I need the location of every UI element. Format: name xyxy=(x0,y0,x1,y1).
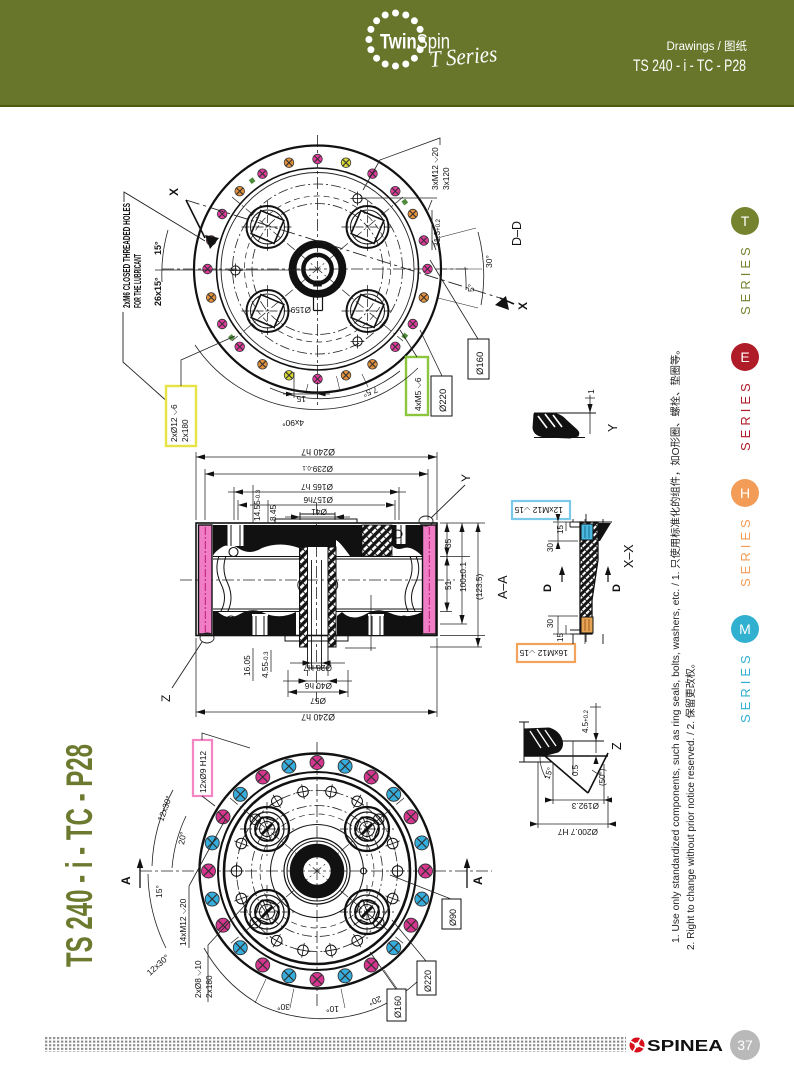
svg-text:12xØ9 H12: 12xØ9 H12 xyxy=(198,751,208,793)
svg-text:Ø159: Ø159 xyxy=(290,305,311,315)
svg-text:16.05: 16.05 xyxy=(242,655,252,676)
svg-text:A: A xyxy=(471,876,485,885)
svg-text:14xM12 ⌵20: 14xM12 ⌵20 xyxy=(178,898,188,946)
svg-text:51: 51 xyxy=(443,580,453,590)
svg-text:Y: Y xyxy=(459,474,473,482)
svg-text:8.45: 8.45 xyxy=(268,504,278,521)
svg-text:4x90°: 4x90° xyxy=(282,418,304,428)
svg-text:20°: 20° xyxy=(367,994,383,1008)
svg-text:2xØ12 ⌵6: 2xØ12 ⌵6 xyxy=(169,404,179,442)
svg-text:Ø220: Ø220 xyxy=(438,389,449,412)
svg-text:A: A xyxy=(119,876,133,885)
svg-text:5°: 5° xyxy=(466,284,476,292)
svg-text:15: 15 xyxy=(296,394,306,404)
svg-text:35: 35 xyxy=(443,538,453,548)
svg-text:Y: Y xyxy=(606,423,620,432)
svg-text:Ø192.3: Ø192.3 xyxy=(571,801,599,811)
svg-text:12xM12 ⌵15: 12xM12 ⌵15 xyxy=(514,505,563,515)
svg-text:0.5: 0.5 xyxy=(571,764,580,776)
svg-text:FOR THE LUBRICANT: FOR THE LUBRICANT xyxy=(132,254,144,308)
svg-text:4.55-0.3: 4.55-0.3 xyxy=(260,651,270,678)
svg-text:55.5: 55.5 xyxy=(359,616,369,633)
svg-text:3xM12 ⌵20: 3xM12 ⌵20 xyxy=(430,147,440,190)
svg-text:15°: 15° xyxy=(153,241,163,255)
svg-text:15°: 15° xyxy=(154,885,164,898)
svg-text:Ø28 H7: Ø28 H7 xyxy=(303,663,332,673)
svg-text:10°: 10° xyxy=(326,1004,339,1014)
svg-text:30: 30 xyxy=(546,619,555,628)
svg-text:4xM5 ⌵6: 4xM5 ⌵6 xyxy=(413,377,423,411)
svg-text:20°: 20° xyxy=(176,831,188,845)
svg-text:4.5+0.2: 4.5+0.2 xyxy=(581,709,590,733)
svg-text:D: D xyxy=(542,584,554,592)
svg-text:Ø239-0.1: Ø239-0.1 xyxy=(302,464,333,474)
svg-text:(50°): (50°) xyxy=(598,768,607,786)
svg-text:Ø240 h7: Ø240 h7 xyxy=(301,447,335,457)
svg-text:Ø40 h6: Ø40 h6 xyxy=(304,681,332,691)
svg-text:X–X: X–X xyxy=(622,544,636,568)
svg-text:15: 15 xyxy=(556,525,565,534)
svg-text:Ø240 h7: Ø240 h7 xyxy=(301,712,335,722)
svg-text:1: 1 xyxy=(586,389,596,394)
svg-text:7.5°: 7.5° xyxy=(362,385,380,400)
svg-text:2x180: 2x180 xyxy=(180,419,190,442)
svg-text:Ø160: Ø160 xyxy=(393,996,403,1018)
svg-text:X: X xyxy=(516,302,530,310)
svg-text:26x15°: 26x15° xyxy=(153,277,163,306)
svg-text:30°: 30° xyxy=(484,255,494,268)
svg-text:Ø160: Ø160 xyxy=(475,352,486,375)
svg-text:D–D: D–D xyxy=(510,221,524,246)
svg-text:3x120: 3x120 xyxy=(441,167,451,190)
svg-text:A–A: A–A xyxy=(496,575,510,599)
svg-text:Ø90: Ø90 xyxy=(448,909,458,926)
svg-text:Ø200.7 H7: Ø200.7 H7 xyxy=(557,827,598,837)
svg-text:Ø220: Ø220 xyxy=(423,970,433,992)
svg-text:2x180: 2x180 xyxy=(204,975,214,998)
svg-text:12x30°: 12x30° xyxy=(155,794,173,822)
svg-text:Z: Z xyxy=(159,695,173,702)
svg-text:30: 30 xyxy=(546,543,555,552)
svg-text:30°: 30° xyxy=(277,1002,290,1012)
svg-text:Z: Z xyxy=(610,742,624,750)
svg-text:16xM12 ⌵15: 16xM12 ⌵15 xyxy=(519,648,568,658)
svg-text:Ø41: Ø41 xyxy=(311,507,327,517)
svg-text:X: X xyxy=(167,188,181,196)
svg-text:D: D xyxy=(611,584,623,592)
svg-text:Ø157h6: Ø157h6 xyxy=(303,495,333,505)
svg-text:14.55-0.3: 14.55-0.3 xyxy=(252,489,262,521)
svg-text:Ø165 h7: Ø165 h7 xyxy=(301,482,333,492)
svg-text:2xØ8 ⌵10: 2xØ8 ⌵10 xyxy=(193,960,203,998)
svg-text:(123.5): (123.5) xyxy=(474,573,484,600)
svg-text:100±0.1: 100±0.1 xyxy=(458,562,468,592)
svg-text:Ø57: Ø57 xyxy=(310,696,326,706)
svg-text:15: 15 xyxy=(556,633,565,642)
svg-text:12x30°: 12x30° xyxy=(145,952,171,977)
